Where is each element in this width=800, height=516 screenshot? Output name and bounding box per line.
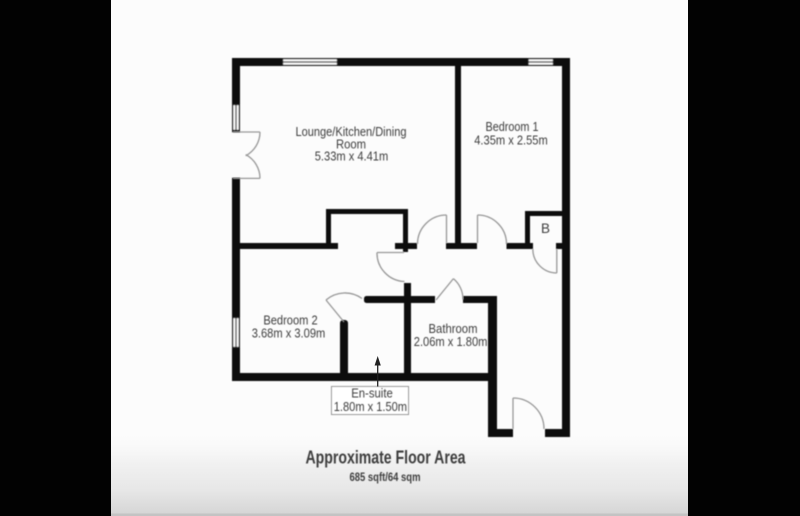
svg-text:Approximate Floor Area: Approximate Floor Area bbox=[306, 448, 467, 468]
svg-text:B: B bbox=[541, 221, 550, 236]
svg-text:685 sqft/64 sqm: 685 sqft/64 sqm bbox=[350, 472, 421, 484]
svg-text:5.33m x 4.41m: 5.33m x 4.41m bbox=[315, 148, 389, 163]
svg-text:4.35m x 2.55m: 4.35m x 2.55m bbox=[474, 133, 548, 148]
svg-text:1.80m x 1.50m: 1.80m x 1.50m bbox=[334, 399, 407, 414]
svg-text:3.68m x 3.09m: 3.68m x 3.09m bbox=[252, 326, 326, 341]
svg-text:2.06m x 1.80m: 2.06m x 1.80m bbox=[414, 334, 488, 349]
